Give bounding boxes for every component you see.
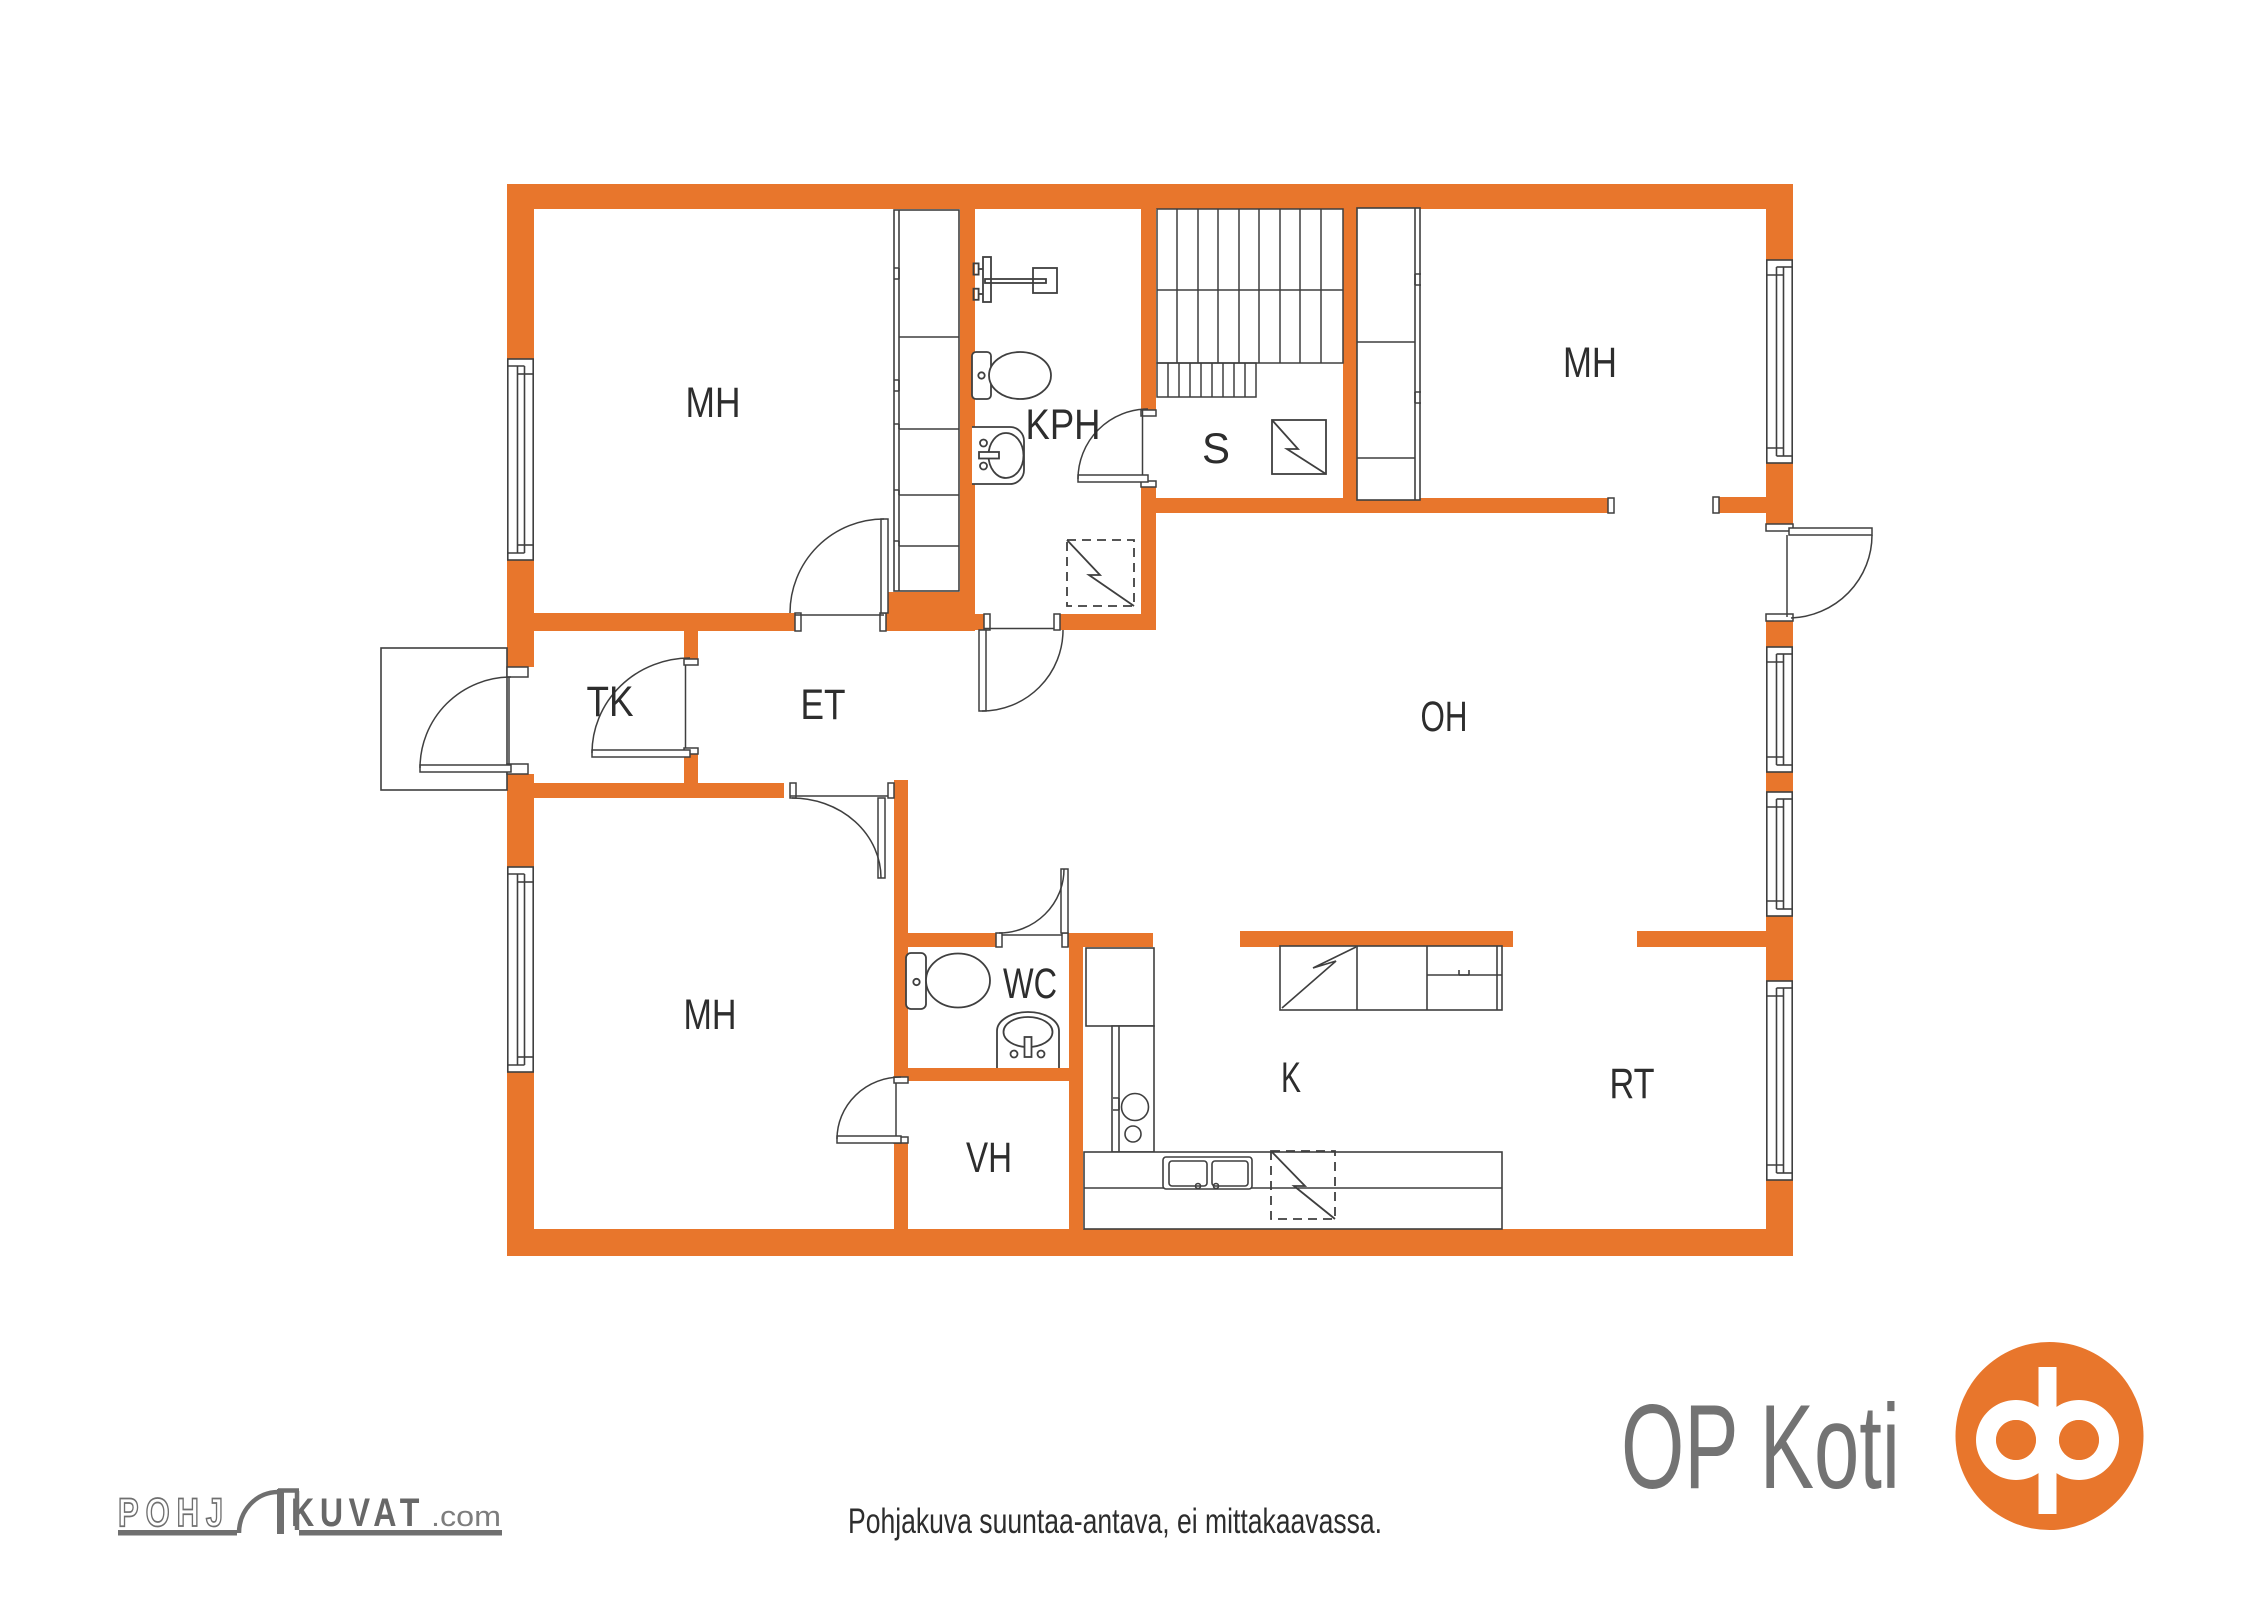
svg-text:MH: MH (684, 991, 737, 1039)
svg-text:OP Koti: OP Koti (1621, 1380, 1900, 1514)
svg-text:K: K (1281, 1054, 1301, 1102)
svg-text:ET: ET (801, 681, 846, 729)
svg-text:POHJ: POHJ (118, 1491, 230, 1535)
svg-text:S: S (1202, 425, 1230, 473)
svg-text:WC: WC (1003, 960, 1057, 1008)
svg-text:MH: MH (1563, 339, 1617, 387)
svg-text:KPH: KPH (1026, 401, 1101, 449)
svg-text:MH: MH (686, 379, 741, 427)
svg-text:OH: OH (1421, 693, 1468, 741)
svg-text:.com: .com (431, 1501, 501, 1533)
svg-text:VH: VH (966, 1134, 1012, 1182)
svg-text:RT: RT (1610, 1060, 1655, 1108)
svg-text:KUVAT: KUVAT (291, 1491, 425, 1535)
svg-text:Pohjakuva suuntaa-antava, ei m: Pohjakuva suuntaa-antava, ei mittakaavas… (848, 1502, 1382, 1541)
svg-text:TK: TK (587, 678, 634, 726)
